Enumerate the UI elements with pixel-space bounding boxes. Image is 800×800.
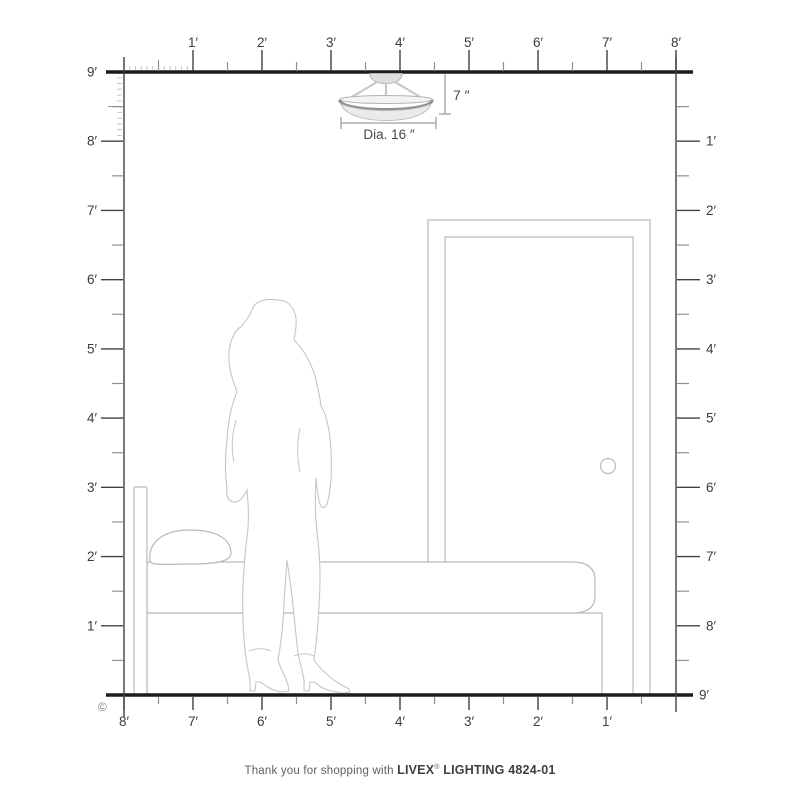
bottom-ruler-label: 4′ bbox=[395, 714, 406, 729]
right-ruler-label: 3′ bbox=[706, 272, 717, 287]
right-ruler-label: 1′ bbox=[706, 134, 717, 149]
footer-prefix: Thank you for shopping with bbox=[244, 765, 397, 777]
left-ruler-label: 7′ bbox=[87, 203, 98, 218]
ceiling-light-fixture bbox=[340, 74, 433, 121]
left-ruler-label: 4′ bbox=[87, 411, 98, 426]
bottom-ruler-label: 3′ bbox=[464, 714, 475, 729]
fixture-rim bbox=[340, 96, 433, 104]
left-ruler-label: 8′ bbox=[87, 134, 98, 149]
right-ruler-label: 2′ bbox=[706, 203, 717, 218]
headboard bbox=[134, 487, 147, 695]
top-ruler-label: 3′ bbox=[326, 35, 337, 50]
bottom-ruler-label: 7′ bbox=[188, 714, 199, 729]
pillow bbox=[150, 530, 231, 564]
top-ruler-label: 1′ bbox=[188, 35, 199, 50]
fixture-height-label: 7 ″ bbox=[453, 87, 470, 103]
bottom-ruler-label: 8′ bbox=[119, 714, 130, 729]
right-ruler-label: 8′ bbox=[706, 618, 717, 633]
door-knob bbox=[601, 459, 616, 474]
mattress bbox=[147, 562, 595, 613]
bottom-ruler-label: 5′ bbox=[326, 714, 337, 729]
footer-product-number: LIGHTING 4824-01 bbox=[440, 763, 556, 777]
dimension-diagram-page: 1′2′3′4′5′6′7′8′9′8′7′6′5′4′3′2′1′1′2′3′… bbox=[0, 0, 800, 800]
left-ruler-label: 2′ bbox=[87, 549, 98, 564]
left-ruler-label: 9′ bbox=[87, 65, 98, 80]
right-ruler-label: 7′ bbox=[706, 549, 717, 564]
fixture-canopy bbox=[370, 74, 402, 84]
footer: Thank you for shopping with LIVEX® LIGHT… bbox=[0, 763, 800, 777]
left-ruler-label: 3′ bbox=[87, 480, 98, 495]
copyright-symbol: © bbox=[98, 700, 107, 714]
bed-base bbox=[147, 613, 602, 694]
bottom-ruler-label: 2′ bbox=[533, 714, 544, 729]
floor-height-label: 9′ bbox=[699, 688, 710, 703]
footer-brand: LIVEX bbox=[397, 763, 434, 777]
bottom-ruler-label: 1′ bbox=[602, 714, 613, 729]
top-ruler-label: 7′ bbox=[602, 35, 613, 50]
right-ruler-label: 6′ bbox=[706, 480, 717, 495]
top-ruler-label: 6′ bbox=[533, 35, 544, 50]
dimension-diagram: 1′2′3′4′5′6′7′8′9′8′7′6′5′4′3′2′1′1′2′3′… bbox=[0, 0, 800, 800]
top-ruler-label: 5′ bbox=[464, 35, 475, 50]
bed bbox=[134, 487, 602, 695]
right-ruler-label: 5′ bbox=[706, 411, 717, 426]
top-ruler-label: 2′ bbox=[257, 35, 268, 50]
left-ruler-label: 5′ bbox=[87, 341, 98, 356]
left-ruler-label: 1′ bbox=[87, 618, 98, 633]
bottom-ruler-label: 6′ bbox=[257, 714, 268, 729]
fixture-diameter-label: Dia. 16 ″ bbox=[363, 127, 415, 142]
right-ruler-label: 4′ bbox=[706, 341, 717, 356]
top-ruler-label: 4′ bbox=[395, 35, 406, 50]
left-ruler-label: 6′ bbox=[87, 272, 98, 287]
top-ruler-label: 8′ bbox=[671, 35, 682, 50]
